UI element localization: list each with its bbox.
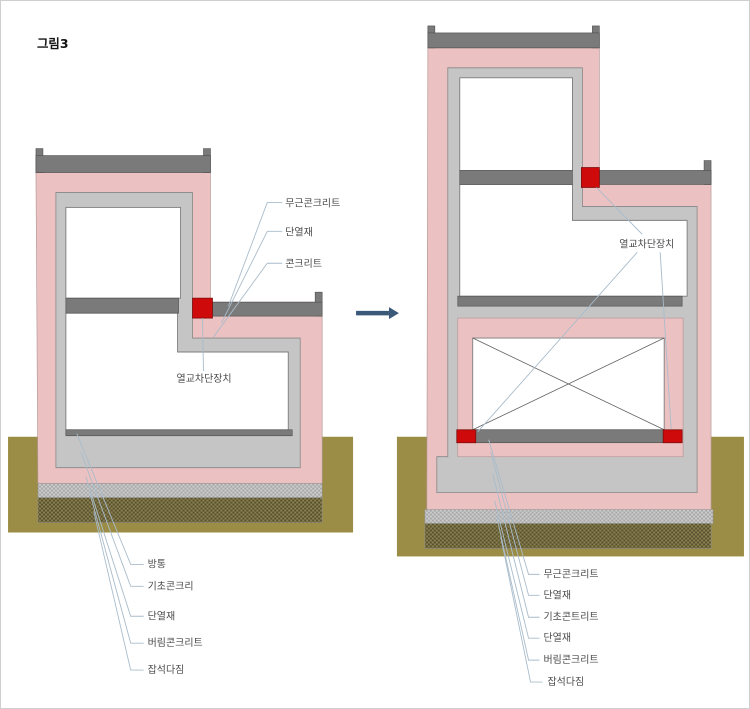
bottom-slab — [476, 430, 663, 443]
label-lean-concrete: 버림콘크리트 — [544, 654, 599, 666]
arrow-head-icon — [389, 307, 399, 319]
roof-slab — [36, 156, 211, 173]
label-thermal-break: 열교차단장치 — [177, 373, 232, 385]
floor-screed — [66, 430, 292, 436]
mid-floor-strip — [458, 296, 682, 306]
construction-detail-diagram: 그림3 — [1, 1, 749, 708]
floor-slab — [66, 298, 179, 313]
label-insulation: 단열재 — [285, 226, 313, 238]
thermal-break-block — [457, 430, 476, 443]
figure-canvas: 그림3 — [0, 0, 750, 709]
rubble-layer — [425, 524, 711, 549]
label-insulation-bottom: 단열재 — [544, 632, 572, 644]
lean-concrete-layer — [38, 484, 322, 498]
rubble-layer — [38, 498, 322, 523]
left-diagram-before: 무근콘크리트 단열재 콘크리트 열교차단장치 방통 기초콘크리 단열재 버림콘크… — [8, 149, 353, 677]
label-lean-concrete: 버림콘크리트 — [148, 637, 203, 649]
label-rubble: 잡석다짐 — [148, 664, 185, 676]
transition-arrow — [356, 307, 399, 319]
label-plain-concrete: 무근콘크리트 — [544, 568, 599, 580]
right-diagram-after: 열교차단장치 무근콘크리트 단열재 기초콘트리트 단열재 버림콘크리트 잡석다짐 — [397, 26, 744, 688]
label-foundation-concrete: 기초콘트리트 — [544, 611, 599, 623]
thermal-break-block — [193, 298, 213, 318]
label-screed: 방통 — [148, 558, 166, 570]
label-plain-concrete: 무근콘크리트 — [285, 197, 340, 209]
label-foundation-concrete: 기초콘크리 — [148, 580, 194, 592]
upper-room — [460, 78, 573, 171]
roof-slab — [428, 33, 600, 48]
floor-slab — [460, 171, 573, 185]
thermal-break-block — [663, 430, 682, 443]
label-concrete: 콘크리트 — [285, 258, 322, 270]
thermal-break-block — [581, 168, 599, 188]
label-insulation-bottom: 단열재 — [148, 610, 176, 622]
lean-concrete-layer — [425, 510, 713, 524]
balcony-slab — [599, 171, 711, 185]
figure-title: 그림3 — [37, 36, 69, 51]
label-thermal-break: 열교차단장치 — [619, 238, 674, 250]
label-rubble: 잡석다짐 — [548, 676, 585, 688]
label-insulation: 단열재 — [544, 589, 572, 601]
upper-room — [66, 207, 181, 298]
